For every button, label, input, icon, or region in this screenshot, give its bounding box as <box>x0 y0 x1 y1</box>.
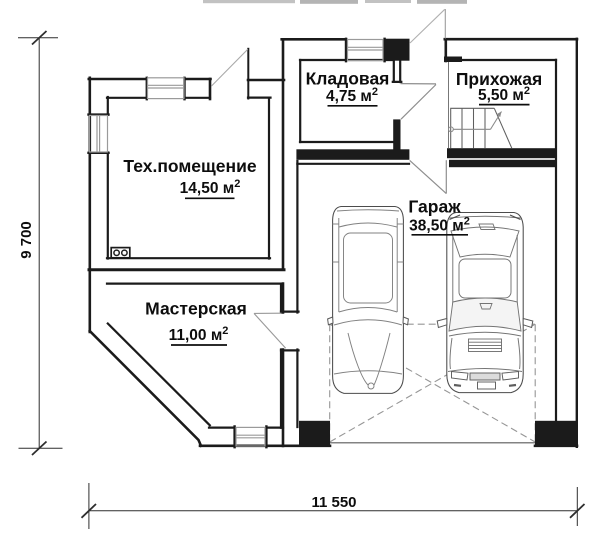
svg-text:4,75 м2: 4,75 м2 <box>326 86 378 105</box>
svg-text:5,50 м2: 5,50 м2 <box>478 85 530 104</box>
svg-text:Гараж: Гараж <box>408 197 461 217</box>
svg-text:11,00 м2: 11,00 м2 <box>169 325 229 344</box>
svg-text:38,50 м2: 38,50 м2 <box>409 216 470 235</box>
svg-text:Тех.помещение: Тех.помещение <box>123 156 256 176</box>
svg-text:9 700: 9 700 <box>18 221 35 259</box>
svg-text:Мастерская: Мастерская <box>145 299 247 319</box>
svg-text:11 550: 11 550 <box>311 494 356 511</box>
svg-text:14,50 м2: 14,50 м2 <box>180 178 241 197</box>
